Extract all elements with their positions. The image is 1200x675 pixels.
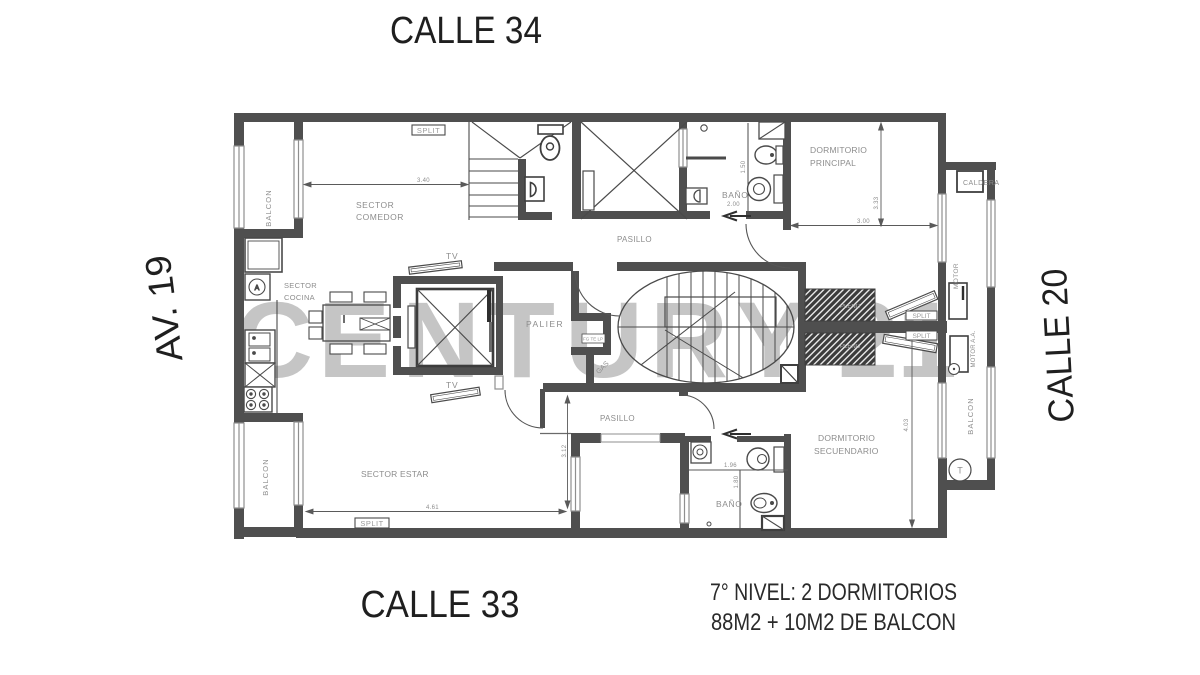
svg-text:3.12: 3.12 (562, 444, 568, 457)
svg-text:SECTOR ESTAR: SECTOR ESTAR (361, 469, 429, 479)
svg-text:CALLE 34: CALLE 34 (390, 10, 542, 52)
svg-text:MOTOR A.A.: MOTOR A.A. (971, 330, 977, 367)
svg-text:BAÑO: BAÑO (716, 499, 743, 509)
svg-text:CALDERA: CALDERA (963, 180, 1000, 187)
svg-text:1.50: 1.50 (741, 160, 747, 173)
svg-text:BALCON: BALCON (264, 189, 273, 226)
svg-text:3.33: 3.33 (874, 196, 880, 209)
svg-text:DORMITORIO: DORMITORIO (810, 145, 867, 155)
svg-text:7° NIVEL: 2 DORMITORIOS: 7° NIVEL: 2 DORMITORIOS (710, 579, 957, 606)
svg-text:PLENO: PLENO (840, 344, 861, 350)
svg-text:PALIER: PALIER (526, 319, 564, 329)
svg-text:2.00: 2.00 (727, 202, 740, 208)
svg-text:PASILLO: PASILLO (600, 414, 635, 423)
svg-text:COMEDOR: COMEDOR (356, 212, 404, 222)
svg-text:BALCON: BALCON (966, 397, 975, 434)
svg-text:SPLIT: SPLIT (912, 313, 930, 320)
svg-text:DORMITORIO: DORMITORIO (818, 433, 875, 443)
svg-text:SPLIT: SPLIT (912, 333, 930, 340)
svg-text:SPLIT: SPLIT (417, 126, 440, 135)
svg-text:SECTOR: SECTOR (284, 281, 317, 290)
svg-text:MOTOR: MOTOR (953, 263, 960, 289)
svg-text:88M2 + 10M2 DE BALCON: 88M2 + 10M2 DE BALCON (711, 609, 956, 636)
svg-text:1.96: 1.96 (724, 463, 737, 469)
svg-text:PASILLO: PASILLO (617, 235, 652, 244)
svg-text:PLENO: PLENO (840, 304, 861, 310)
svg-text:FG TE LP: FG TE LP (583, 337, 603, 342)
svg-text:CALLE 20: CALLE 20 (1033, 268, 1082, 424)
svg-text:TV: TV (446, 380, 458, 390)
svg-text:SPLIT: SPLIT (360, 519, 383, 528)
svg-text:A: A (255, 285, 260, 292)
svg-text:3.40: 3.40 (417, 178, 430, 184)
svg-text:3.00: 3.00 (857, 219, 870, 225)
svg-text:1.80: 1.80 (734, 475, 740, 488)
svg-text:TV: TV (446, 251, 458, 261)
svg-text:COCINA: COCINA (284, 293, 315, 302)
svg-text:BALCON: BALCON (261, 458, 270, 495)
svg-text:4.03: 4.03 (904, 418, 910, 431)
svg-text:CALLE 33: CALLE 33 (361, 584, 520, 626)
svg-text:SECUENDARIO: SECUENDARIO (814, 446, 879, 456)
svg-text:T: T (957, 466, 963, 476)
svg-text:SECTOR: SECTOR (356, 200, 394, 210)
svg-text:BAÑO: BAÑO (722, 190, 749, 200)
svg-text:4.61: 4.61 (426, 505, 439, 511)
svg-text:PRINCIPAL: PRINCIPAL (810, 158, 856, 168)
